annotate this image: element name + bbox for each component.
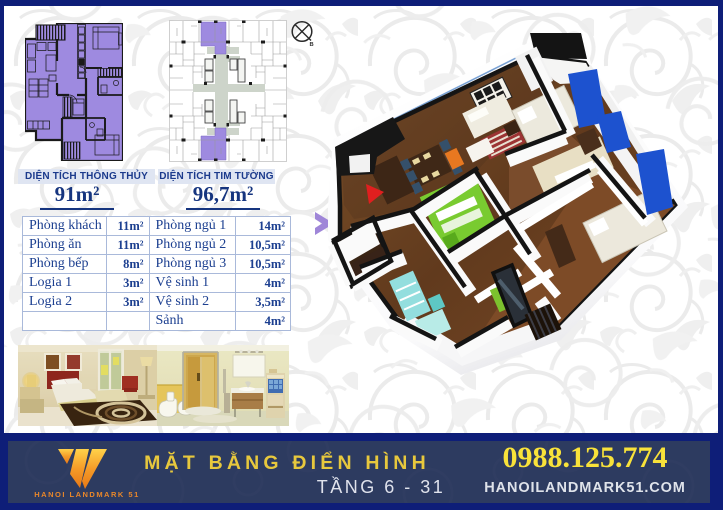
svg-text:B: B <box>310 42 314 48</box>
